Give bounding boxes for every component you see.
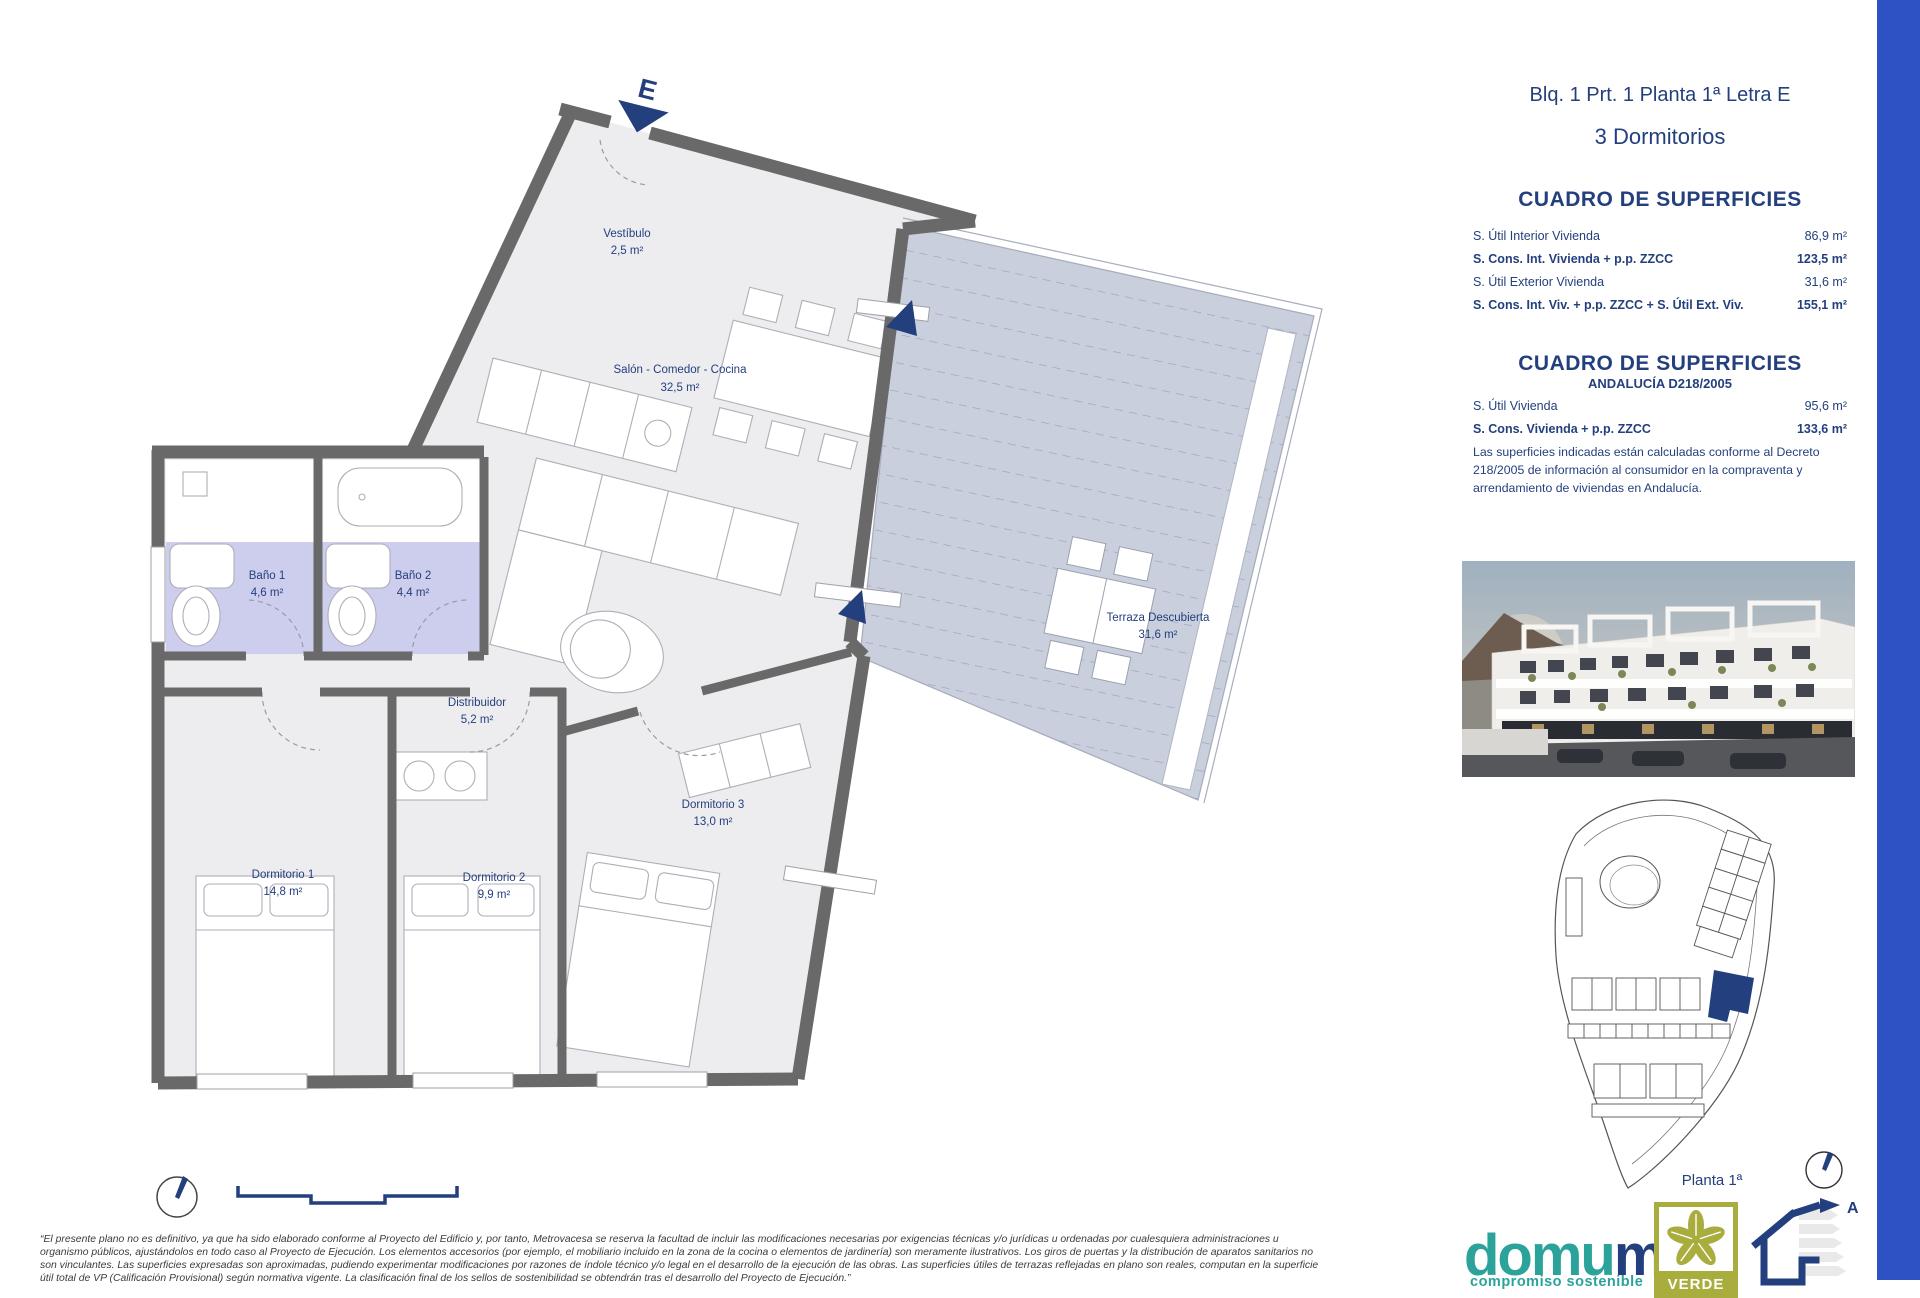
svg-text:Baño 2: Baño 2 (395, 570, 431, 582)
svg-text:Distribuidor: Distribuidor (448, 697, 506, 709)
svg-text:Terraza Descubierta: Terraza Descubierta (1107, 612, 1211, 624)
floorplan-sheet: { "header": { "title_line1": "Blq. 1 Prt… (0, 0, 1920, 1280)
verde-flower-icon (1659, 1207, 1733, 1269)
surfaces-table2-title: CUADRO DE SUPERFICIES (1462, 352, 1858, 376)
svg-text:13,0 m²: 13,0 m² (694, 816, 733, 828)
entrance-letter: E (635, 73, 660, 106)
svg-text:5,2 m²: 5,2 m² (461, 714, 494, 726)
svg-text:4,6 m²: 4,6 m² (251, 587, 284, 599)
surface-row: S. Cons. Int. Vivienda + p.p. ZZCC 123,5… (1473, 252, 1847, 266)
disclaimer: “El presente plano no es definitivo, ya … (40, 1233, 1460, 1285)
scale-bar (238, 1186, 457, 1203)
terrace (860, 218, 1322, 803)
svg-text:32,5 m²: 32,5 m² (661, 382, 700, 394)
surfaces-table-title: CUADRO DE SUPERFICIES (1462, 188, 1858, 212)
energy-letter: A (1847, 1200, 1859, 1217)
svg-text:Dormitorio 2: Dormitorio 2 (463, 872, 526, 884)
surfaces-table2-subtitle: ANDALUCÍA D218/2005 (1462, 376, 1858, 391)
verde-certificate-badge: VERDE (1654, 1202, 1738, 1298)
unit-subtitle: 3 Dormitorios (1462, 124, 1858, 150)
svg-text:Baño 1: Baño 1 (249, 570, 285, 582)
side-accent-bar (1877, 0, 1920, 1280)
unit-title: Blq. 1 Prt. 1 Planta 1ª Letra E (1462, 84, 1858, 107)
surface-row: S. Útil Exterior Vivienda 31,6 m² (1473, 275, 1847, 289)
surface-row: S. Cons. Int. Viv. + p.p. ZZCC + S. Útil… (1473, 298, 1847, 312)
svg-text:31,6 m²: 31,6 m² (1139, 629, 1178, 641)
verde-label: VERDE (1659, 1271, 1733, 1298)
svg-text:Dormitorio 1: Dormitorio 1 (252, 869, 315, 881)
surface-row: S. Cons. Vivienda + p.p. ZZCC 133,6 m² (1473, 422, 1847, 436)
north-compass-icon (157, 1176, 197, 1217)
site-compass-icon (1802, 1148, 1846, 1192)
svg-text:Dormitorio 3: Dormitorio 3 (682, 799, 745, 811)
building-photo (1462, 561, 1855, 777)
svg-text:Vestíbulo: Vestíbulo (603, 228, 650, 240)
svg-text:4,4 m²: 4,4 m² (397, 587, 430, 599)
svg-text:14,8 m²: 14,8 m² (264, 886, 303, 898)
svg-text:2,5 m²: 2,5 m² (611, 245, 644, 257)
energy-rating-icon: A (1744, 1198, 1864, 1286)
floor-label: Planta 1ª (1650, 1172, 1774, 1189)
site-plan (1538, 786, 1810, 1194)
decree-note: Las superficies indicadas están calculad… (1473, 443, 1851, 497)
surface-row: S. Útil Interior Vivienda 86,9 m² (1473, 229, 1847, 243)
surface-row: S. Útil Vivienda 95,6 m² (1473, 399, 1847, 413)
svg-text:Salón - Comedor - Cocina: Salón - Comedor - Cocina (614, 364, 748, 376)
svg-text:9,9 m²: 9,9 m² (478, 889, 511, 901)
domum-tagline: compromiso sostenible (1470, 1274, 1643, 1290)
